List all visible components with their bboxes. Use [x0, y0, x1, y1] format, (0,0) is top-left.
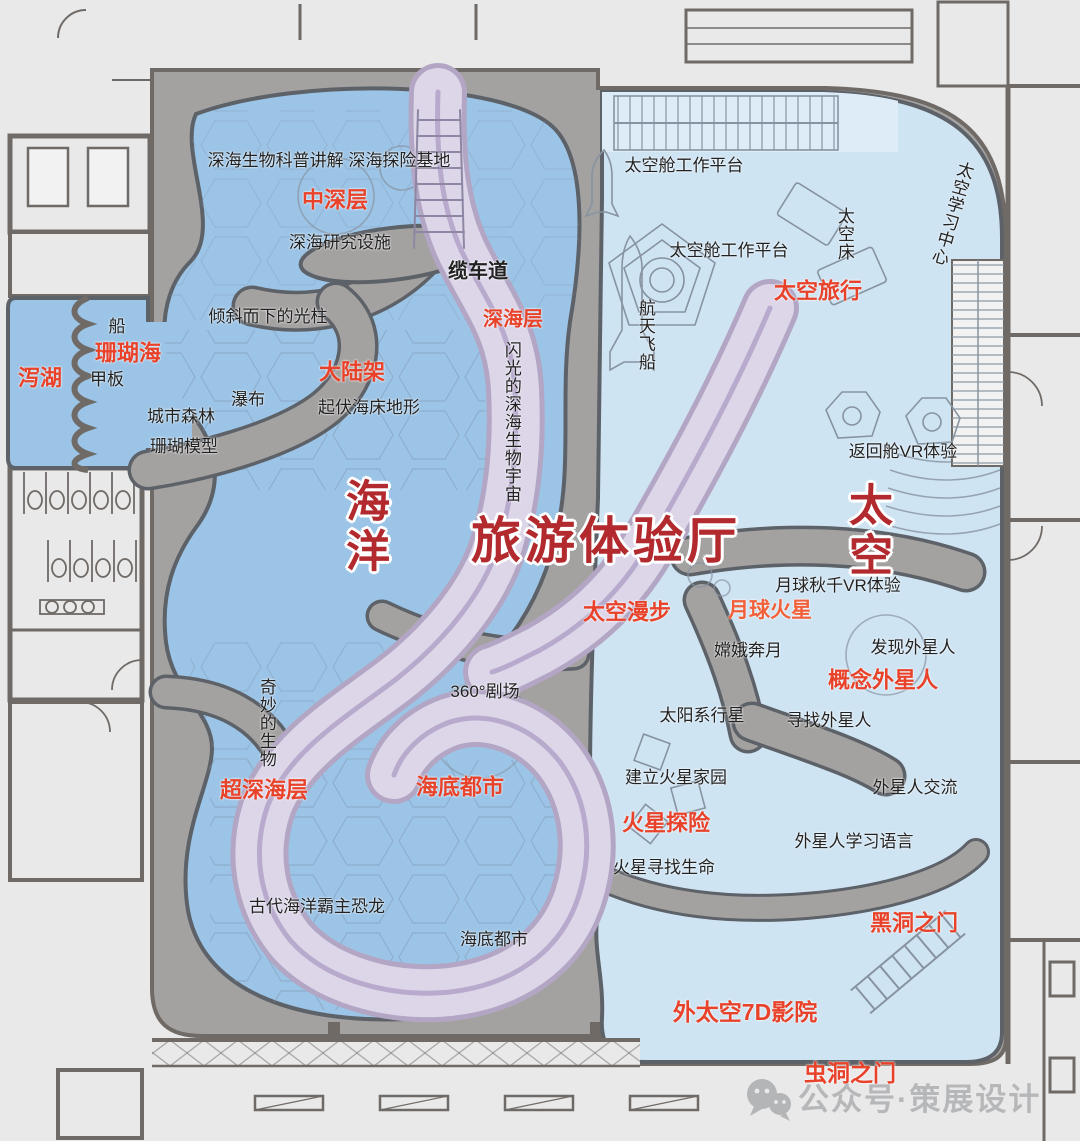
- elevator-car-icon: [28, 148, 68, 206]
- label-black-hole-gate: 黑洞之门: [870, 911, 958, 934]
- label-alien-communication: 外星人交流: [873, 779, 958, 797]
- label-mars-adventure: 火星探险: [622, 811, 710, 834]
- label-concept-aliens: 概念外星人: [828, 668, 938, 691]
- label-continental-shelf: 大陆架: [319, 360, 385, 383]
- label-change-flying: 嫦娥奔月: [714, 642, 782, 660]
- label-space-walk: 太空漫步: [583, 600, 671, 623]
- label-deep-sea-layer: 深海层: [483, 310, 543, 331]
- label-return-capsule-vr: 返回舱VR体验: [849, 443, 958, 461]
- hall-title: 旅游体验厅: [471, 501, 741, 573]
- label-discover-aliens: 发现外星人: [871, 639, 956, 657]
- ocean-zone-title: 海洋: [331, 478, 395, 578]
- label-seabed-city-red: 海底都市: [416, 775, 504, 798]
- space-zone-title: 太空: [834, 482, 898, 582]
- label-find-aliens: 寻找外星人: [787, 712, 872, 730]
- label-alien-language: 外星人学习语言: [795, 833, 914, 851]
- label-deep-sea-research: 深海研究设施: [289, 234, 391, 252]
- stairs-icon: [614, 96, 838, 150]
- label-light-beam: 倾斜而下的光柱: [209, 308, 328, 326]
- label-mars-home: 建立火星家园: [625, 769, 727, 787]
- label-mars-life: 火星寻找生命: [613, 859, 715, 877]
- label-solar-planets: 太阳系行星: [660, 707, 745, 725]
- label-mid-deep-layer: 中深层: [302, 188, 368, 211]
- label-capsule-platform-2: 太空舱工作平台: [670, 242, 789, 260]
- label-waterfall: 瀑布: [231, 391, 265, 409]
- label-seabed-terrain: 起伏海床地形: [318, 399, 420, 417]
- label-city-forest: 城市森林: [147, 408, 215, 426]
- escalator-icon: [952, 260, 1004, 466]
- label-outer-space-7d: 外太空7D影院: [673, 1000, 817, 1024]
- elevator-car-icon: [88, 148, 128, 206]
- label-deck: 甲板: [90, 371, 124, 389]
- watermark: 公众号·策展设计: [742, 1074, 1041, 1119]
- label-space-bed: 太空床: [835, 207, 853, 261]
- label-capsule-platform-1: 太空舱工作平台: [625, 157, 744, 175]
- label-coral-sea: 珊瑚海: [95, 341, 161, 364]
- label-ancient-dinosaur: 古代海洋霸主恐龙: [249, 898, 385, 916]
- elevator-block: [10, 136, 150, 296]
- floor-plan-map: 深海生物科普讲解 深海探险基地 中深层 深海研究设施 缆车道 倾斜而下的光柱 深…: [0, 0, 1080, 1141]
- restroom-block: [10, 468, 142, 700]
- label-spaceship: 航天飞船: [636, 299, 654, 371]
- label-lagoon: 泻湖: [18, 366, 62, 389]
- label-ultra-deep-layer: 超深海层: [220, 778, 308, 801]
- label-deep-sea-science: 深海生物科普讲解 深海探险基地: [208, 152, 451, 170]
- label-wonderful-creatures: 奇妙的生物: [257, 678, 275, 768]
- label-space-travel: 太空旅行: [774, 279, 862, 302]
- label-seabed-city-black: 海底都市: [460, 931, 528, 949]
- watermark-text: 公众号·策展设计: [798, 1074, 1041, 1119]
- label-cable-road: 缆车道: [448, 262, 508, 283]
- label-theater-360: 360°剧场: [450, 683, 519, 701]
- label-glowing-universe: 闪光的深海生物宇宙: [502, 341, 520, 503]
- label-boat: 船: [109, 318, 126, 336]
- label-coral-model: 珊瑚模型: [150, 438, 218, 456]
- label-moon-mars: 月球火星: [728, 600, 812, 622]
